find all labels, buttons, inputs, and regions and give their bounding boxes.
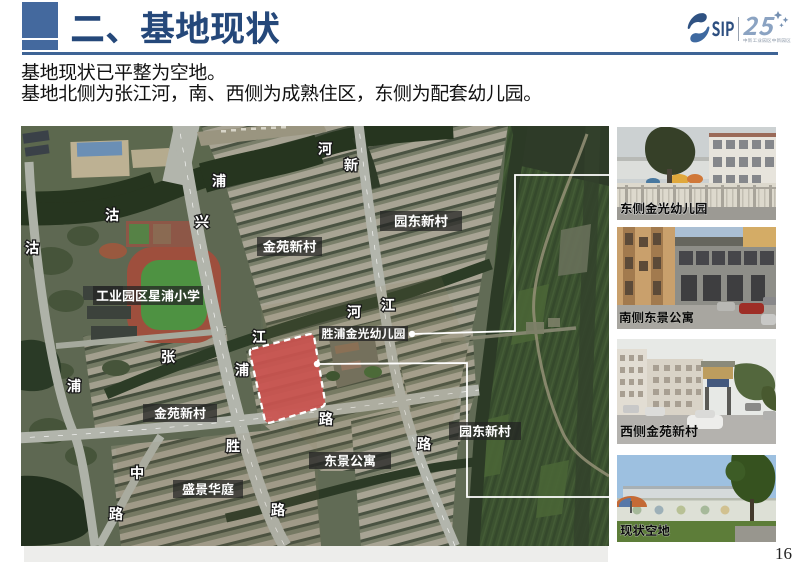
svg-text:东景公寓: 东景公寓 xyxy=(324,451,376,470)
svg-text:中: 中 xyxy=(130,462,145,483)
svg-text:现状空地: 现状空地 xyxy=(620,520,671,539)
svg-text:工业园区星浦小学: 工业园区星浦小学 xyxy=(96,286,200,305)
svg-text:西侧金苑新村: 西侧金苑新村 xyxy=(620,421,698,440)
svg-text:新: 新 xyxy=(344,154,359,175)
svg-text:路: 路 xyxy=(319,408,334,429)
svg-text:沽: 沽 xyxy=(25,237,40,258)
svg-text:南侧东景公寓: 南侧东景公寓 xyxy=(619,307,694,326)
svg-text:东侧金光幼儿园: 东侧金光幼儿园 xyxy=(620,198,708,217)
svg-text:中新工业园区中新园区: 中新工业园区中新园区 xyxy=(743,38,791,44)
svg-text:浦: 浦 xyxy=(67,375,82,396)
svg-text:胜浦金光幼儿园: 胜浦金光幼儿园 xyxy=(321,325,405,342)
svg-text:园东新村: 园东新村 xyxy=(394,210,448,230)
svg-text:盛景华庭: 盛景华庭 xyxy=(182,479,234,498)
svg-text:路: 路 xyxy=(109,503,124,524)
svg-text:路: 路 xyxy=(271,499,286,520)
svg-text:河: 河 xyxy=(347,301,362,322)
svg-text:浦: 浦 xyxy=(212,170,227,191)
svg-text:江: 江 xyxy=(252,326,267,347)
svg-text:金苑新村: 金苑新村 xyxy=(154,403,206,422)
svg-text:胜: 胜 xyxy=(226,435,241,456)
svg-text:张: 张 xyxy=(161,346,176,367)
svg-text:SIP: SIP xyxy=(712,13,735,42)
svg-text:路: 路 xyxy=(417,433,432,454)
svg-text:浦: 浦 xyxy=(235,359,250,380)
svg-text:金苑新村: 金苑新村 xyxy=(263,236,317,256)
svg-text:沽: 沽 xyxy=(105,204,120,225)
svg-text:河: 河 xyxy=(318,138,333,159)
svg-text:兴: 兴 xyxy=(195,211,210,232)
svg-text:江: 江 xyxy=(381,294,396,315)
svg-text:园东新村: 园东新村 xyxy=(459,421,511,440)
